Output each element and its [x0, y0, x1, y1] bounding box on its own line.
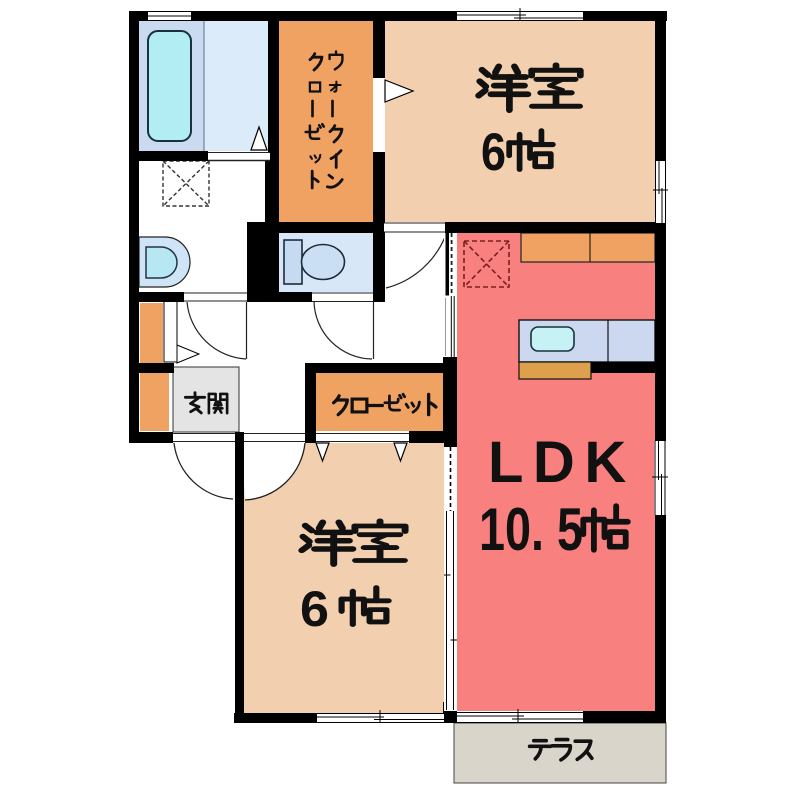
svg-text:6: 6	[481, 123, 506, 182]
svg-text:6: 6	[300, 581, 329, 637]
svg-text:LDK: LDK	[488, 430, 636, 495]
svg-text:10. 5: 10. 5	[479, 496, 583, 563]
